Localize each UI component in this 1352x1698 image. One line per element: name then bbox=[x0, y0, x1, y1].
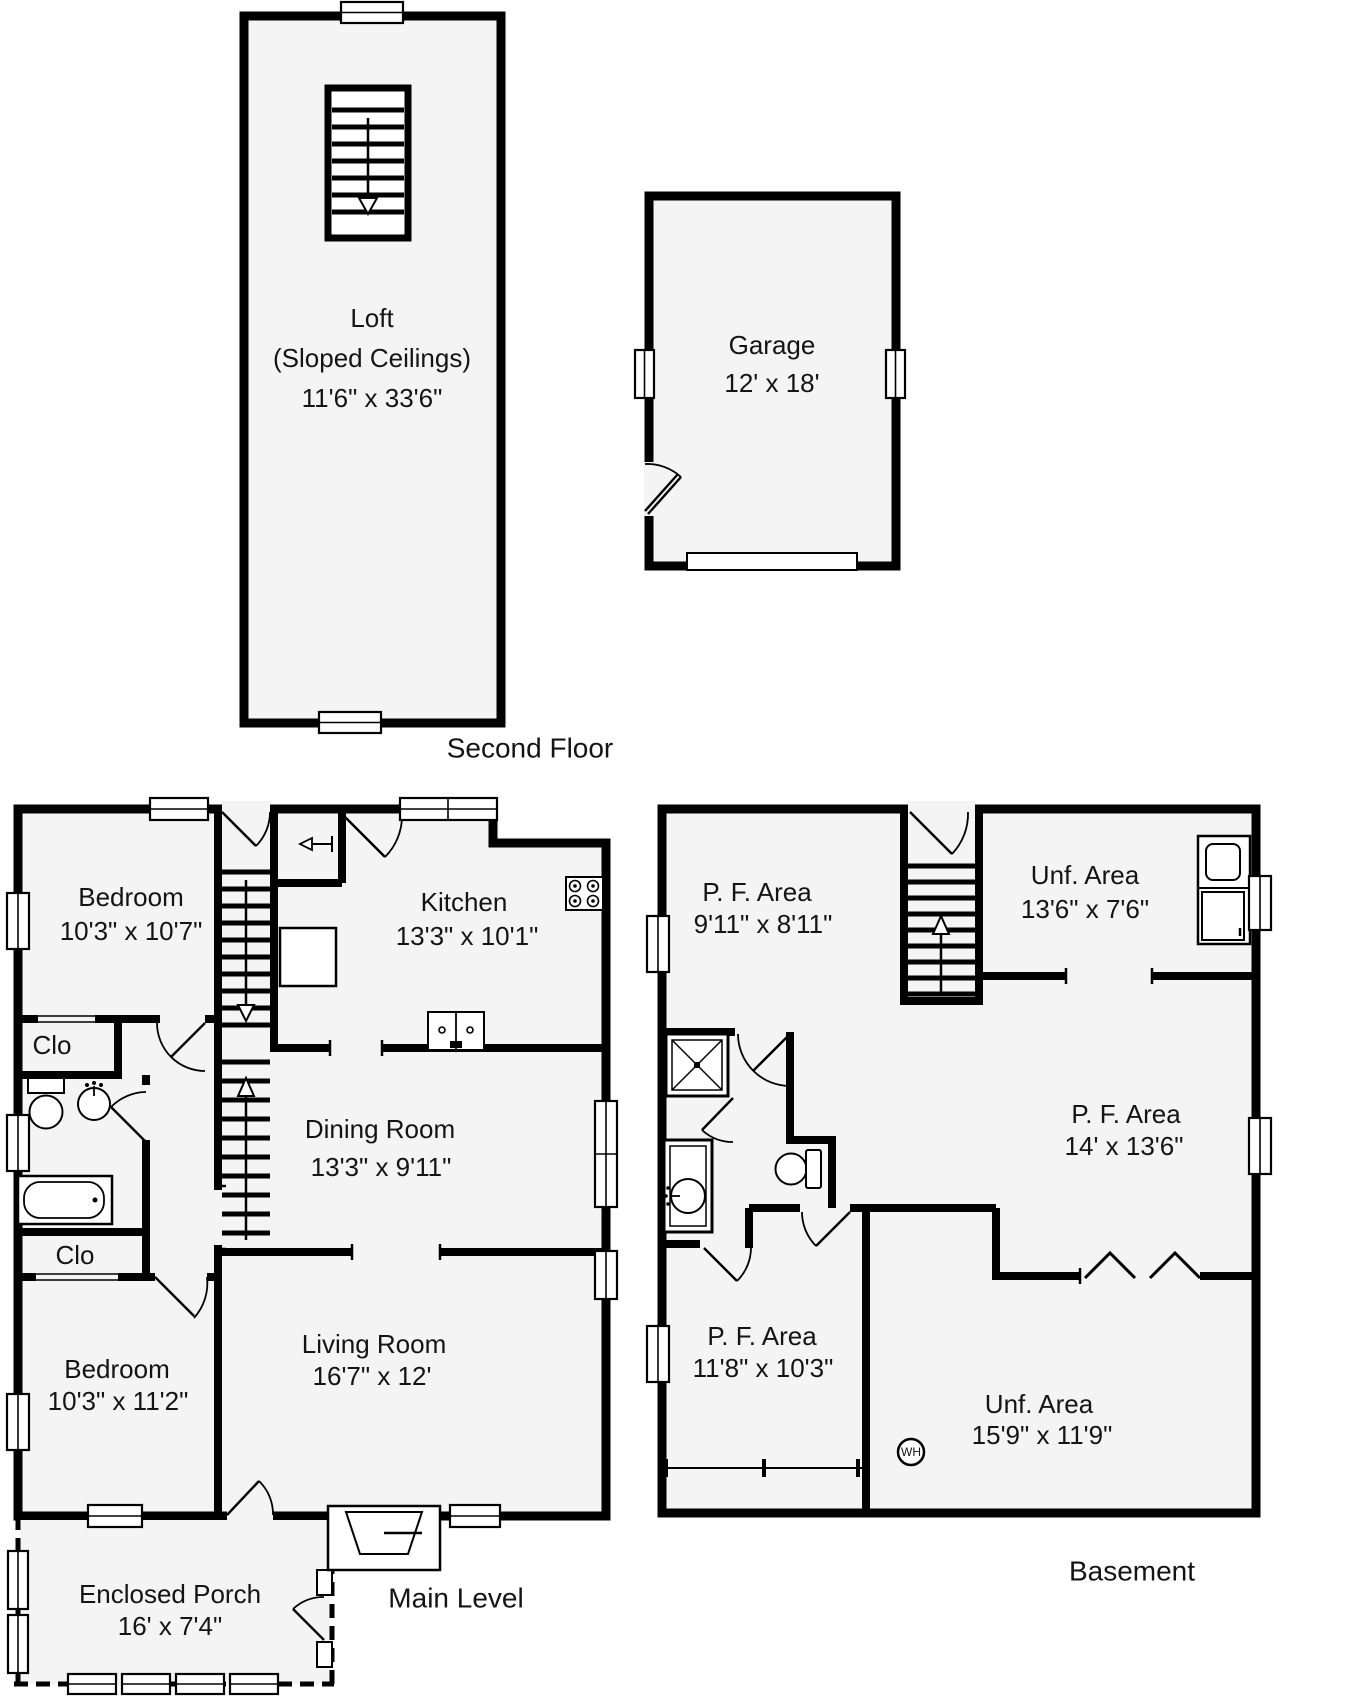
unf-area-lower-name: Unf. Area bbox=[985, 1389, 1094, 1419]
unf-area-upper-dims: 13'6" x 7'6" bbox=[1021, 894, 1149, 924]
window-icon bbox=[68, 1674, 116, 1694]
second-floor-plan: Loft (Sloped Ceilings) 11'6" x 33'6" Sec… bbox=[244, 2, 613, 763]
window-icon bbox=[635, 350, 654, 398]
pf-area-lower-name: P. F. Area bbox=[707, 1321, 817, 1351]
toilet-icon bbox=[28, 1078, 64, 1129]
main-level-label: Main Level bbox=[388, 1582, 523, 1613]
window-icon bbox=[8, 1551, 28, 1609]
bedroom-lower-dims: 10'3" x 11'2" bbox=[48, 1386, 189, 1416]
window-icon bbox=[341, 2, 403, 23]
window-icon bbox=[150, 798, 208, 820]
window-icon bbox=[886, 350, 905, 398]
kitchen-dims: 13'3" x 10'1" bbox=[396, 921, 539, 951]
window-icon bbox=[230, 1674, 278, 1694]
sink-icon bbox=[664, 1140, 712, 1232]
pf-area-mid-name: P. F. Area bbox=[1071, 1099, 1181, 1129]
garage-plan: Garage 12' x 18' bbox=[635, 196, 905, 570]
basement-plan: WH P. F. Area 9'11" x 8'11" Unf. Area 13… bbox=[647, 801, 1271, 1586]
water-heater-label: WH bbox=[901, 1445, 921, 1459]
main-level-plan: Bedroom 10'3" x 10'7" Kitchen 13'3" x 10… bbox=[7, 798, 617, 1694]
pf-area-upper-name: P. F. Area bbox=[702, 877, 812, 907]
loft-note: (Sloped Ceilings) bbox=[273, 343, 471, 373]
window-icon bbox=[450, 1505, 500, 1527]
window-icon bbox=[122, 1674, 170, 1694]
unf-area-upper-name: Unf. Area bbox=[1031, 860, 1140, 890]
floor-plan: Loft (Sloped Ceilings) 11'6" x 33'6" Sec… bbox=[0, 0, 1352, 1698]
closet-lower-label: Clo bbox=[55, 1240, 94, 1270]
kitchen-sink-icon bbox=[428, 1012, 484, 1050]
second-floor-label: Second Floor bbox=[447, 732, 614, 763]
bedroom-lower-name: Bedroom bbox=[64, 1354, 170, 1384]
toilet-icon bbox=[776, 1150, 822, 1188]
water-heater-icon: WH bbox=[898, 1439, 924, 1465]
basement-label: Basement bbox=[1069, 1555, 1195, 1586]
pf-area-mid-dims: 14' x 13'6" bbox=[1065, 1131, 1184, 1161]
kitchen-name: Kitchen bbox=[421, 887, 508, 917]
window-icon bbox=[7, 893, 29, 949]
pf-area-lower-dims: 11'8" x 10'3" bbox=[693, 1353, 834, 1383]
unf-area-lower-dims: 15'9" x 11'9" bbox=[972, 1420, 1113, 1450]
shower-icon bbox=[666, 1034, 728, 1096]
window-icon bbox=[595, 1251, 617, 1299]
floor-plan-page: Loft (Sloped Ceilings) 11'6" x 33'6" Sec… bbox=[0, 0, 1352, 1698]
furnace-icon bbox=[1198, 836, 1250, 944]
living-room-name: Living Room bbox=[302, 1329, 447, 1359]
living-room-dims: 16'7" x 12' bbox=[313, 1361, 432, 1391]
window-icon bbox=[7, 1115, 29, 1171]
window-icon bbox=[319, 712, 381, 733]
window-icon bbox=[8, 1615, 28, 1673]
stairs-icon bbox=[328, 88, 408, 238]
garage-dims: 12' x 18' bbox=[724, 368, 819, 398]
enclosed-porch-name: Enclosed Porch bbox=[79, 1579, 261, 1609]
refrigerator-icon bbox=[280, 928, 336, 986]
garage-name: Garage bbox=[729, 330, 816, 360]
window-icon bbox=[400, 798, 497, 820]
window-icon bbox=[7, 1394, 29, 1450]
pf-area-upper-dims: 9'11" x 8'11" bbox=[694, 909, 833, 939]
garage-door-icon bbox=[687, 553, 857, 570]
bathtub-icon bbox=[18, 1176, 112, 1224]
window-icon bbox=[595, 1101, 617, 1207]
window-icon bbox=[1249, 876, 1271, 930]
window-icon bbox=[88, 1505, 142, 1527]
window-icon bbox=[1249, 1118, 1271, 1174]
window-icon bbox=[647, 1326, 669, 1382]
dining-room-dims: 13'3" x 9'11" bbox=[311, 1152, 452, 1182]
window-icon bbox=[176, 1674, 224, 1694]
en closed-porch-dims: 16' x 7'4" bbox=[118, 1611, 222, 1641]
dining-room-name: Dining Room bbox=[305, 1114, 455, 1144]
closet-upper-label: Clo bbox=[32, 1030, 71, 1060]
fireplace-icon bbox=[328, 1506, 440, 1570]
bedroom-upper-name: Bedroom bbox=[78, 882, 184, 912]
loft-name: Loft bbox=[350, 303, 394, 333]
loft-dims: 11'6" x 33'6" bbox=[302, 383, 443, 413]
bedroom-upper-dims: 10'3" x 10'7" bbox=[60, 916, 203, 946]
stove-icon bbox=[566, 877, 603, 910]
window-icon bbox=[647, 916, 669, 972]
